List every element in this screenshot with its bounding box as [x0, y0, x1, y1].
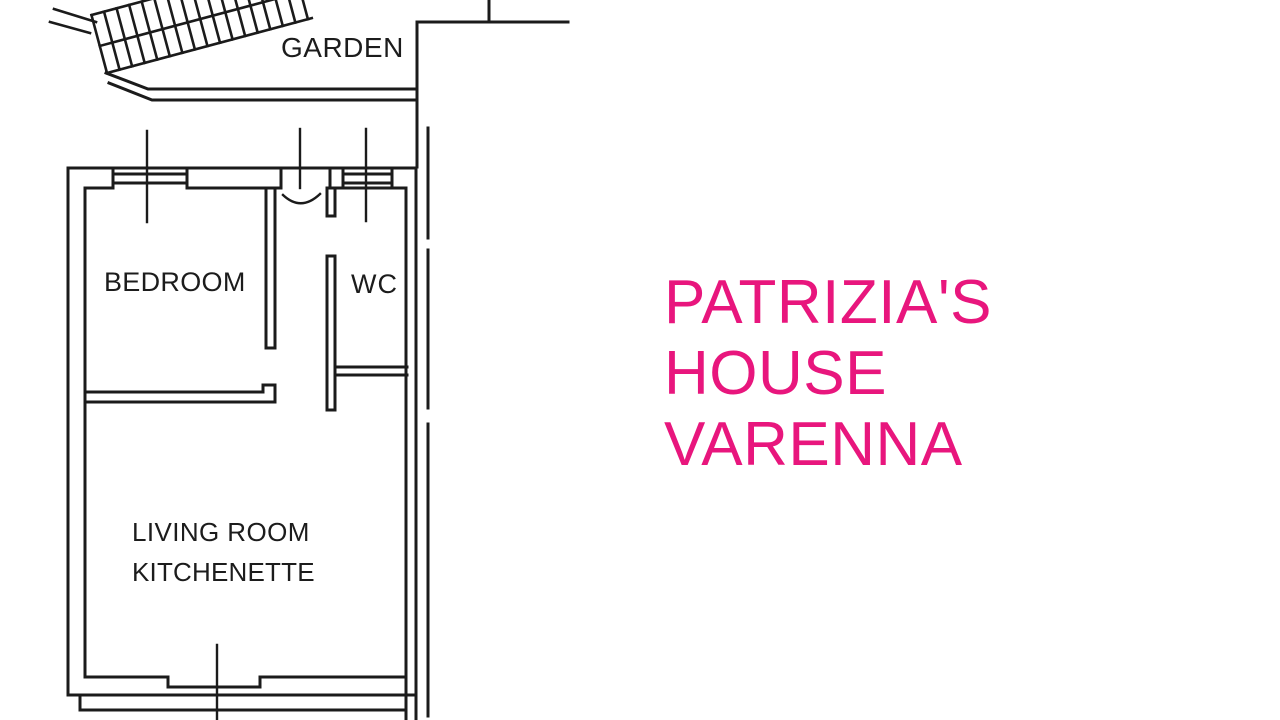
wc-bottom-wall: [335, 367, 407, 375]
bedroom-divider-wall: [266, 188, 275, 348]
site-wall-top-right: [417, 0, 568, 167]
bedroom-bottom-wall: [85, 385, 275, 402]
title-line-1: PATRIZIA'S: [664, 267, 992, 338]
lower-structure: [80, 697, 406, 710]
staircase: [91, 0, 311, 73]
floor-plan: GARDEN BEDROOM WC LIVING ROOM KITCHENETT…: [0, 0, 1280, 720]
title-block: PATRIZIA'S HOUSE VARENNA: [664, 267, 992, 480]
title-line-3: VARENNA: [664, 409, 992, 480]
living-room-label: LIVING ROOM: [132, 517, 310, 547]
living-room-window: [168, 677, 260, 687]
apartment-outer-wall: [68, 168, 416, 720]
wc-window: [343, 168, 392, 188]
bedroom-window: [113, 168, 187, 188]
title-line-2: HOUSE: [664, 338, 992, 409]
stair-approach-rails: [50, 9, 96, 33]
stair-steps: [91, 0, 307, 73]
screenshot-root: GARDEN BEDROOM WC LIVING ROOM KITCHENETT…: [0, 0, 1280, 720]
bedroom-label: BEDROOM: [104, 267, 246, 297]
entrance-door-jambs: [281, 168, 330, 188]
wc-left-wall: [327, 188, 335, 410]
garden-path: [106, 73, 416, 100]
wc-label: WC: [351, 269, 398, 299]
garden-label: GARDEN: [281, 32, 404, 63]
entrance-door-swing: [283, 194, 320, 203]
kitchenette-label: KITCHENETTE: [132, 557, 315, 587]
